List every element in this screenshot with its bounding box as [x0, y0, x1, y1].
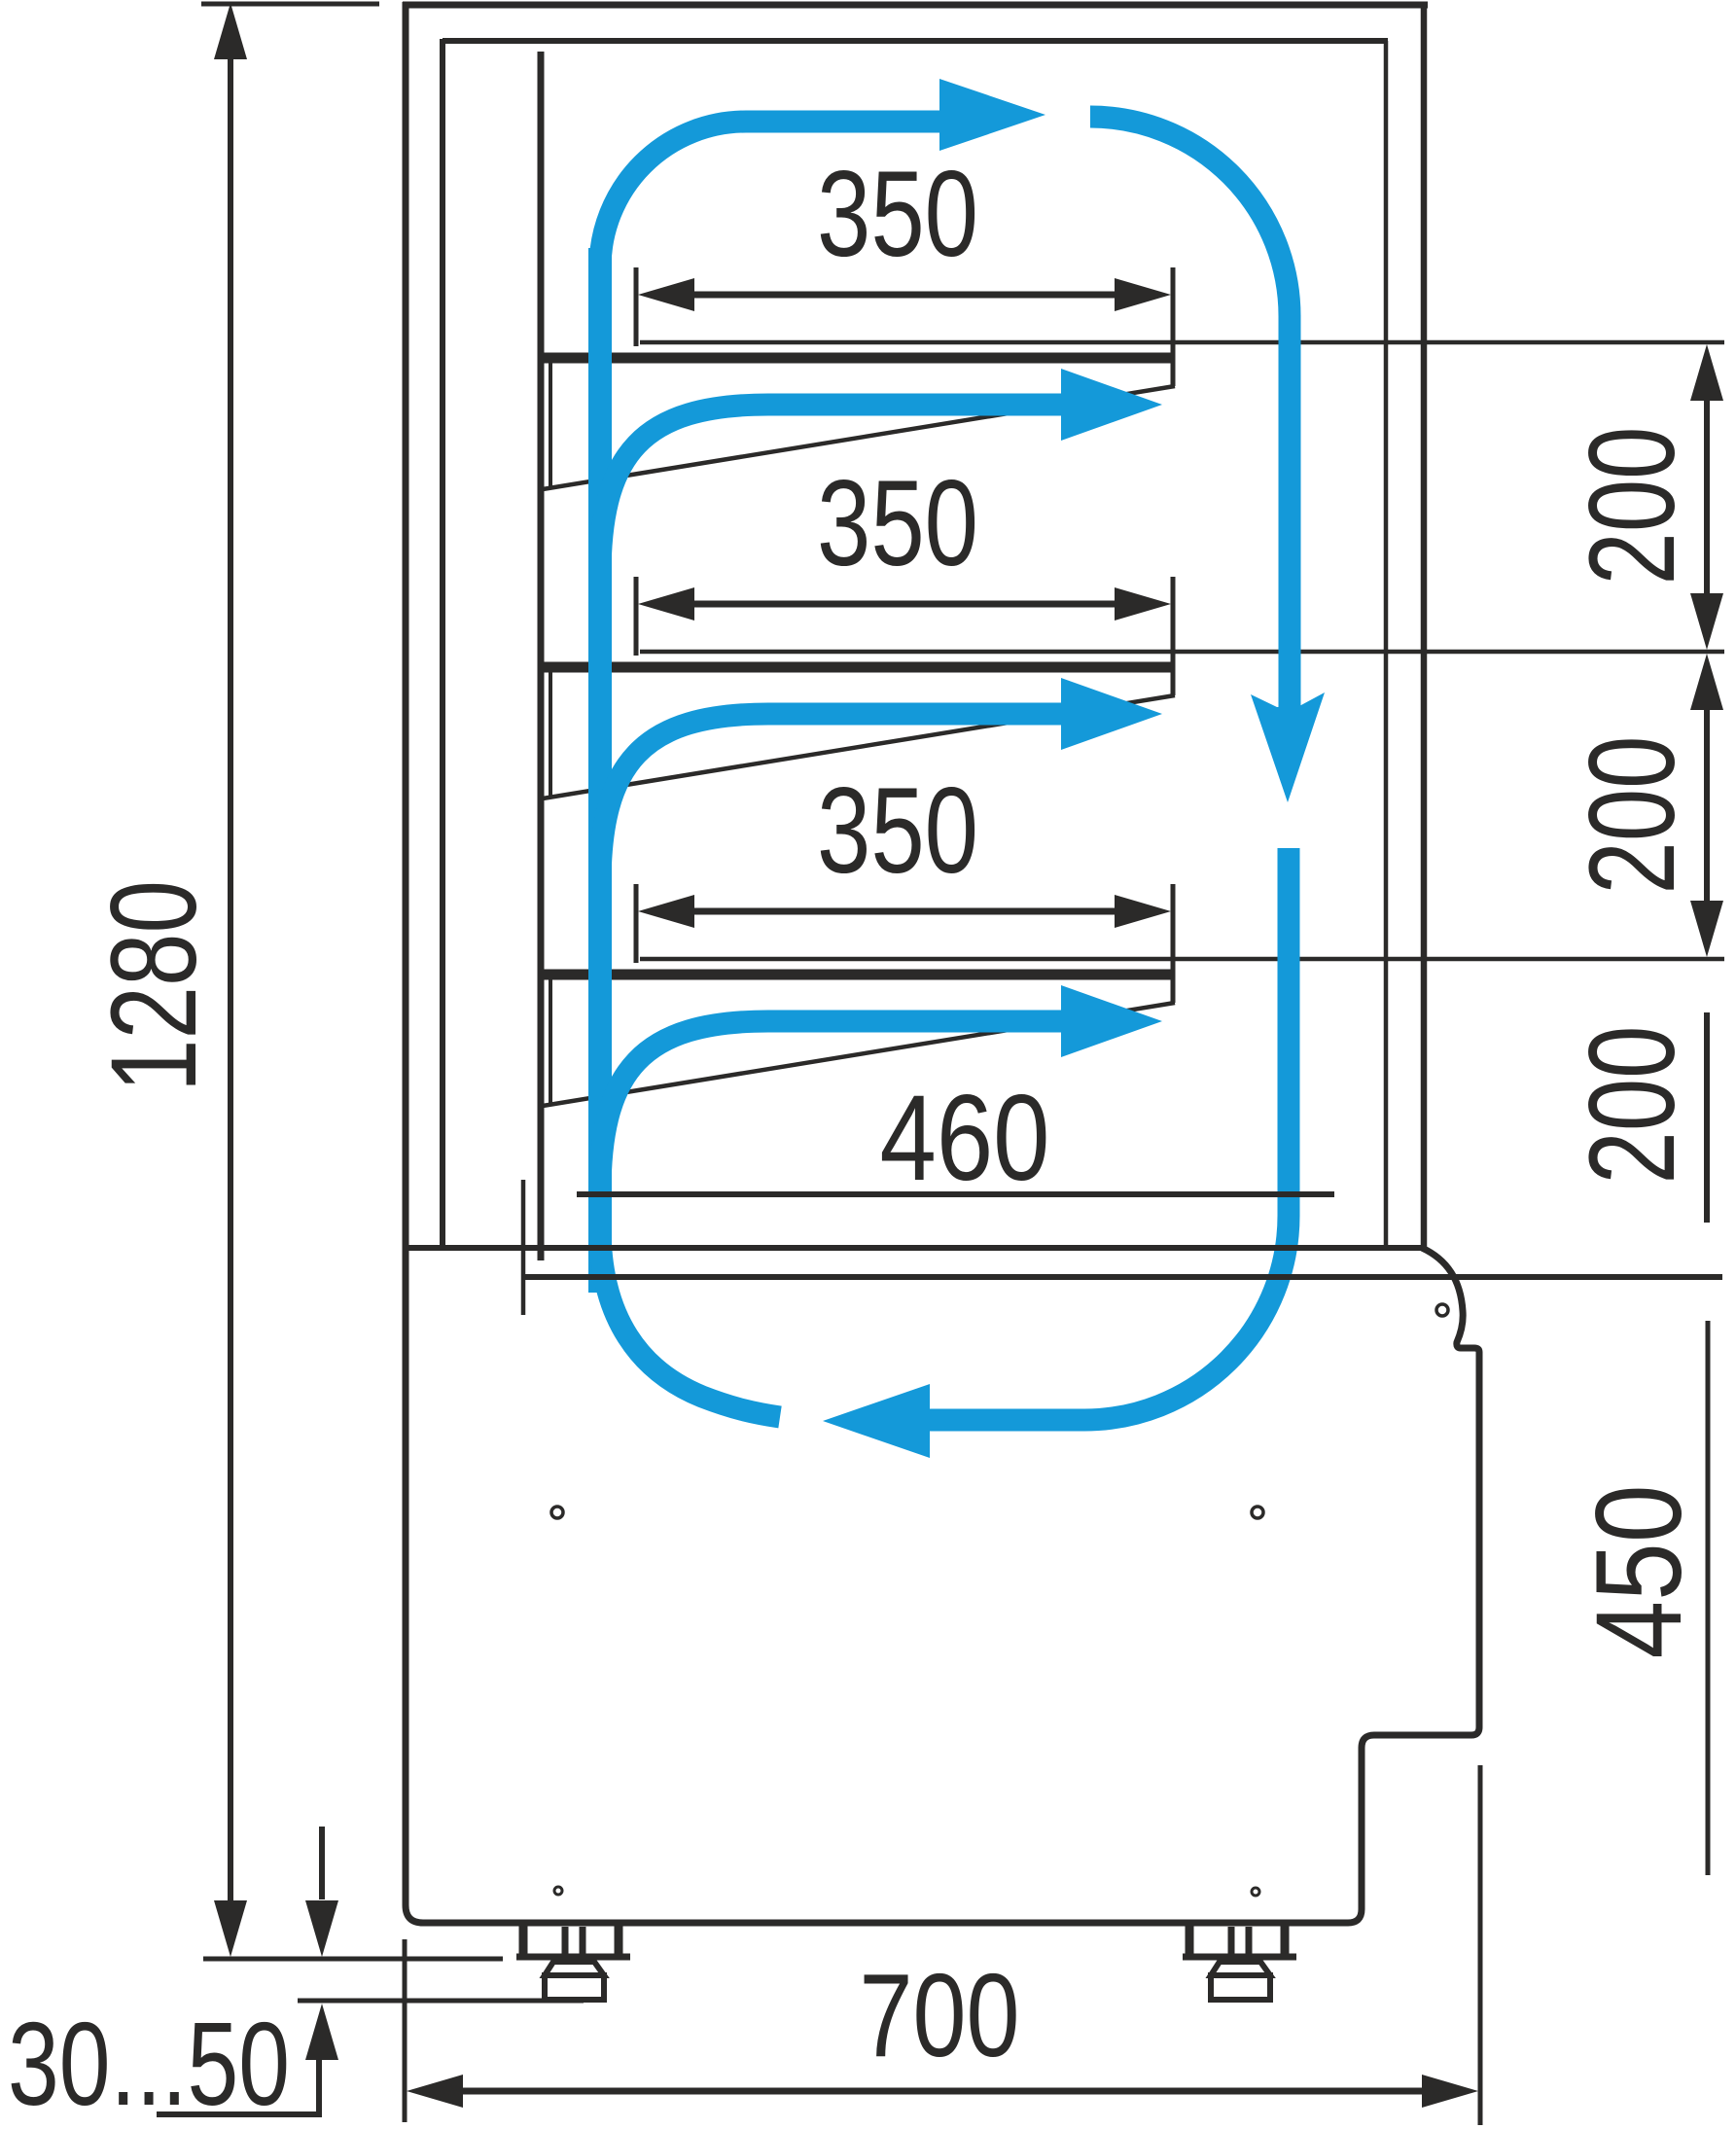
svg-text:200: 200	[1565, 1026, 1700, 1185]
svg-text:1280: 1280	[87, 880, 222, 1092]
svg-text:460: 460	[880, 1071, 1050, 1206]
svg-text:350: 350	[817, 147, 978, 282]
svg-text:350: 350	[817, 456, 978, 591]
svg-text:30...50: 30...50	[8, 1998, 290, 2129]
svg-text:200: 200	[1565, 736, 1700, 895]
svg-text:700: 700	[860, 1949, 1020, 2081]
svg-text:200: 200	[1565, 427, 1700, 585]
svg-text:350: 350	[817, 763, 978, 899]
svg-text:450: 450	[1572, 1485, 1707, 1659]
